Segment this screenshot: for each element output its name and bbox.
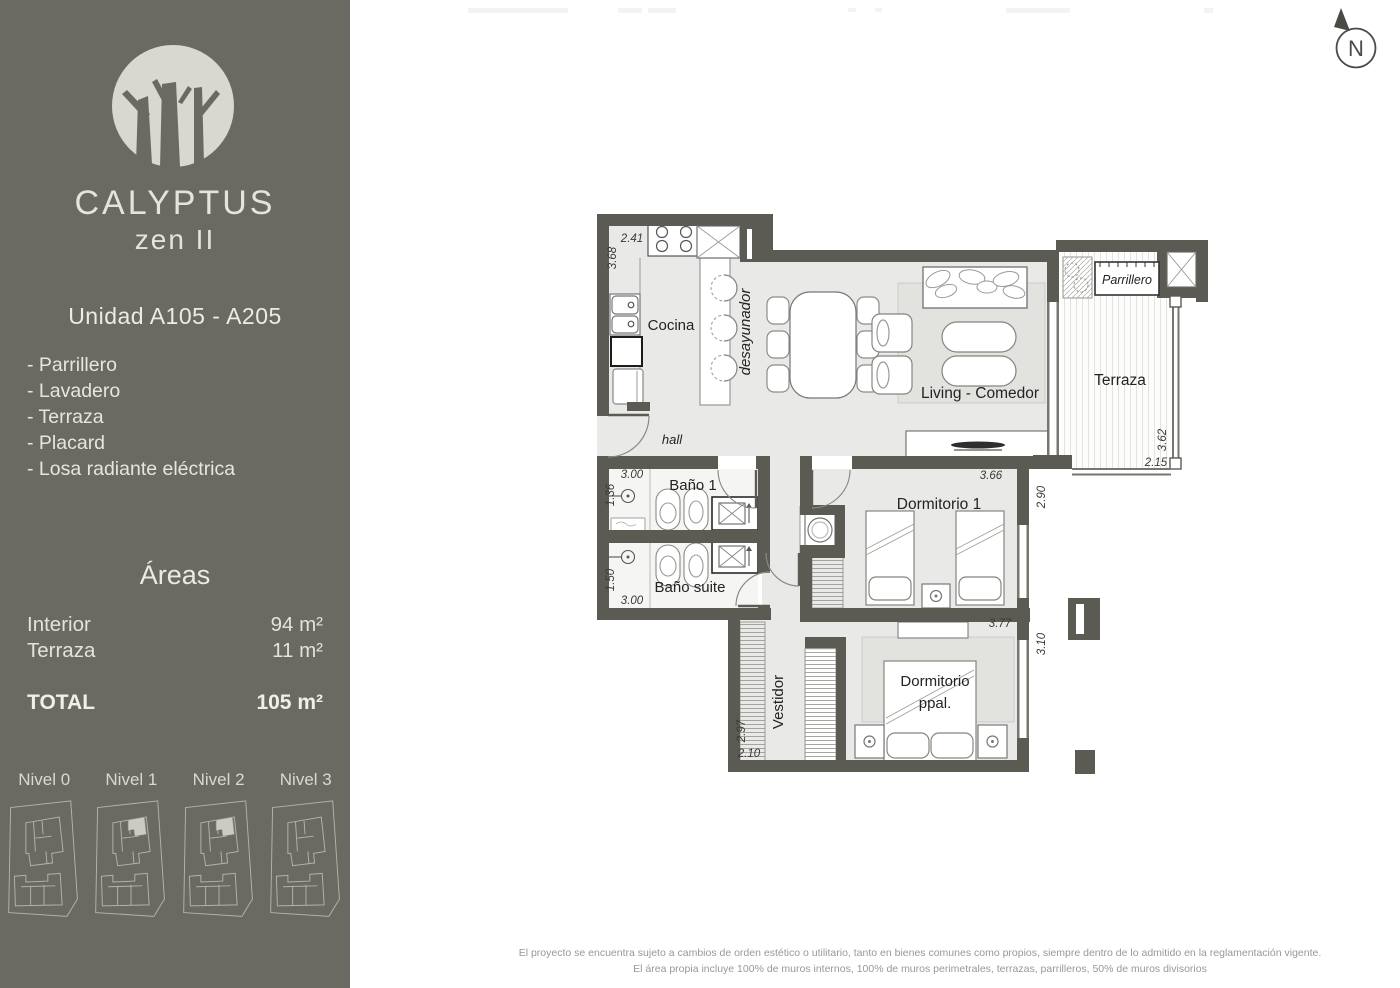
areas-table: Interior 94 m² Terraza 11 m²: [27, 612, 323, 664]
brand-name: CALYPTUS: [0, 184, 350, 223]
area-value: 94 m²: [271, 612, 323, 638]
area-total-row: TOTAL 105 m²: [27, 691, 323, 715]
exterior-pier: [1075, 750, 1095, 774]
rail-post: [1170, 296, 1181, 307]
dim-dorm-ppal-alto: 3.10: [1036, 632, 1048, 655]
dim-dorm1-alto: 2.90: [1036, 485, 1048, 509]
bidet: [684, 488, 708, 532]
label-desayunador: desayunador: [737, 288, 754, 376]
feature-item: - Lavadero: [27, 378, 235, 404]
level-label: Nivel 1: [88, 770, 174, 790]
label-living: Living - Comedor: [921, 385, 1039, 402]
north-indicator: N: [1334, 8, 1376, 68]
dresser: [898, 622, 968, 638]
pier-slot: [1076, 604, 1084, 634]
total-value: 105 m²: [256, 691, 323, 715]
dim-dorm-ppal-ancho: 3.77: [989, 618, 1012, 630]
tv: [951, 442, 1005, 449]
north-label: N: [1348, 36, 1364, 61]
page: CALYPTUS zen II Unidad A105 - A205 - Par…: [0, 0, 1400, 988]
disclaimer-line-2: El área propia incluye 100% de muros int…: [440, 962, 1400, 978]
level-thumb-nivel-2[interactable]: Nivel 2: [176, 770, 262, 933]
rail-post: [1170, 458, 1181, 469]
level-selector: Nivel 0 Nivel 1: [0, 770, 350, 933]
coffee-table: [942, 322, 1016, 352]
level-thumb-nivel-0[interactable]: Nivel 0: [1, 770, 87, 933]
area-row: Interior 94 m²: [27, 612, 323, 638]
areas-heading: Áreas: [0, 560, 350, 591]
feature-item: - Terraza: [27, 404, 235, 430]
dim-vestidor-ancho: 2.10: [737, 748, 761, 760]
label-vestidor: Vestidor: [770, 675, 787, 729]
feature-item: - Placard: [27, 430, 235, 456]
shelf: [611, 518, 645, 531]
pillow: [869, 577, 911, 600]
pillow: [931, 733, 973, 758]
sidebar: CALYPTUS zen II Unidad A105 - A205 - Par…: [0, 0, 350, 988]
north-arrow-icon: [1334, 8, 1350, 31]
level-label: Nivel 2: [176, 770, 262, 790]
highlighted-unit: [129, 817, 147, 836]
pillow: [887, 733, 929, 758]
floor-plan: Cocina desayunador hall Baño 1 Baño suit…: [350, 0, 1400, 988]
coffee-table: [942, 356, 1016, 386]
armchair: [872, 356, 912, 394]
site-plan-thumbnail: [2, 794, 86, 928]
closet: [812, 557, 843, 608]
dim-cocina-largo: 3.68: [607, 246, 619, 269]
armchair: [872, 314, 912, 352]
area-label: Interior: [27, 612, 91, 638]
label-bano1: Baño 1: [669, 477, 717, 494]
area-row: Terraza 11 m²: [27, 638, 323, 664]
label-bano-suite: Baño suite: [655, 579, 726, 596]
dim-bano1-alto: 1.36: [605, 483, 617, 506]
dim-bano-suite-ancho: 3.00: [621, 595, 644, 607]
kitchen-appliance: [611, 337, 642, 366]
label-dormitorio1: Dormitorio 1: [897, 496, 981, 513]
dim-bano-suite-alto: 1.50: [605, 568, 617, 591]
feature-item: - Losa radiante eléctrica: [27, 456, 235, 482]
dim-terraza-alto: 3.62: [1157, 428, 1169, 451]
disclaimer: El proyecto se encuentra sujeto a cambio…: [440, 946, 1400, 977]
ghost-artifacts: [468, 8, 1213, 13]
feature-item: - Parrillero: [27, 352, 235, 378]
label-hall: hall: [662, 432, 683, 447]
level-label: Nivel 3: [263, 770, 349, 790]
area-value: 11 m²: [272, 638, 323, 664]
site-plan-thumbnail: [89, 794, 173, 928]
brand-logo: [108, 42, 238, 172]
dim-vestidor-alto: 2.97: [736, 719, 748, 743]
disclaimer-line-1: El proyecto se encuentra sujeto a cambio…: [440, 946, 1400, 962]
area-label: Terraza: [27, 638, 95, 664]
level-label: Nivel 0: [1, 770, 87, 790]
level-thumb-nivel-1[interactable]: Nivel 1: [88, 770, 174, 933]
unit-title: Unidad A105 - A205: [0, 303, 350, 330]
brand-edition: zen II: [0, 224, 350, 256]
label-terraza: Terraza: [1094, 372, 1146, 389]
dining-set: [767, 292, 879, 398]
highlighted-unit: [216, 817, 234, 836]
laundry-niche: [805, 514, 835, 546]
bar-stools: [711, 275, 737, 381]
level-thumb-nivel-3[interactable]: Nivel 3: [263, 770, 349, 933]
dim-bano1-ancho: 3.00: [621, 469, 644, 481]
label-parrillero: Parrillero: [1102, 273, 1152, 287]
site-plan-thumbnail: [264, 794, 348, 928]
feature-list: - Parrillero - Lavadero - Terraza - Plac…: [27, 352, 235, 482]
site-plan-thumbnail: [177, 794, 261, 928]
dim-dorm1-ancho: 3.66: [980, 470, 1003, 482]
pillow: [959, 577, 1001, 600]
refrigerator: [613, 369, 643, 404]
total-label: TOTAL: [27, 691, 95, 715]
toilet: [656, 489, 680, 530]
label-cocina: Cocina: [648, 317, 695, 334]
dim-terraza-ancho: 2.15: [1144, 457, 1168, 469]
label-dorm-ppal-1: Dormitorio: [900, 673, 969, 690]
dim-cocina-ancho: 2.41: [620, 233, 643, 245]
label-dorm-ppal-2: ppal.: [919, 695, 952, 712]
